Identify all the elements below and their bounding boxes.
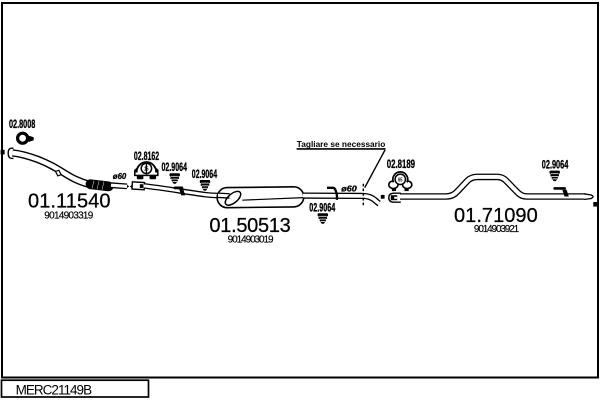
svg-text:02.8189: 02.8189: [387, 157, 415, 171]
svg-text:9014903019: 9014903019: [228, 235, 274, 246]
svg-text:02.9064: 02.9064: [162, 160, 188, 174]
svg-text:MERC21149B: MERC21149B: [16, 383, 93, 398]
svg-text:02.9064: 02.9064: [542, 157, 569, 171]
svg-text:02.9064: 02.9064: [192, 167, 217, 181]
svg-text:65: 65: [398, 177, 402, 183]
svg-text:ø60: ø60: [341, 184, 357, 194]
svg-text:9014903921: 9014903921: [474, 224, 520, 235]
svg-text:01.11540: 01.11540: [28, 190, 111, 212]
svg-text:15: 15: [144, 167, 149, 173]
svg-text:Tagliare se necessario: Tagliare se necessario: [297, 139, 386, 149]
svg-text:02.8162: 02.8162: [134, 149, 159, 163]
svg-text:9014903319: 9014903319: [44, 211, 93, 222]
svg-text:ø60: ø60: [113, 171, 127, 181]
svg-text:02.9064: 02.9064: [309, 201, 335, 215]
svg-text:02.8008: 02.8008: [9, 117, 35, 131]
